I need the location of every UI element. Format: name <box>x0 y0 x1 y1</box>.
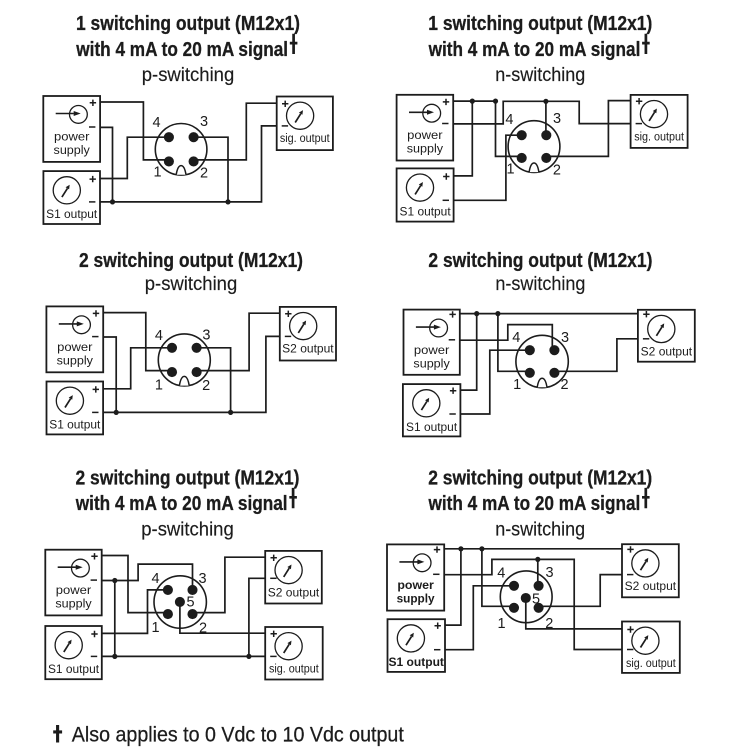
svg-text:3: 3 <box>545 565 553 581</box>
svg-text:3: 3 <box>553 111 561 127</box>
svg-text:4: 4 <box>512 330 520 346</box>
svg-text:supply: supply <box>413 357 450 371</box>
svg-text:S2 output: S2 output <box>625 579 677 593</box>
svg-text:5: 5 <box>532 591 540 607</box>
svg-text:n-switching: n-switching <box>495 518 585 540</box>
svg-text:4: 4 <box>151 571 159 587</box>
svg-text:4: 4 <box>152 115 160 131</box>
svg-text:p-switching: p-switching <box>142 64 235 86</box>
svg-text:3: 3 <box>198 571 206 587</box>
svg-text:supply: supply <box>397 591 435 605</box>
svg-text:power: power <box>56 583 91 597</box>
svg-text:power: power <box>414 343 449 357</box>
svg-text:sig. output: sig. output <box>280 131 330 145</box>
svg-text:1 switching output (M12x1): 1 switching output (M12x1) <box>76 13 300 35</box>
svg-text:4: 4 <box>155 328 163 344</box>
svg-text:power: power <box>57 340 92 354</box>
svg-text:2 switching output (M12x1): 2 switching output (M12x1) <box>79 250 303 272</box>
svg-text:with 4 mA to 20 mA signal: with 4 mA to 20 mA signal <box>428 493 641 515</box>
svg-text:2: 2 <box>553 163 561 179</box>
svg-text:2: 2 <box>545 616 553 632</box>
svg-text:supply: supply <box>55 597 92 611</box>
svg-text:S1 output: S1 output <box>406 420 458 434</box>
svg-text:S1 output: S1 output <box>388 655 444 669</box>
svg-text:3: 3 <box>561 330 569 346</box>
svg-text:n-switching: n-switching <box>495 64 585 86</box>
svg-text:1: 1 <box>151 620 159 636</box>
svg-text:sig. output: sig. output <box>269 662 319 676</box>
svg-text:2: 2 <box>200 165 208 181</box>
svg-text:with 4 mA to 20 mA signal: with 4 mA to 20 mA signal <box>75 39 288 61</box>
svg-text:1: 1 <box>513 377 521 393</box>
svg-text:with 4 mA to 20 mA signal: with 4 mA to 20 mA signal <box>75 493 288 515</box>
svg-text:2: 2 <box>202 378 210 394</box>
svg-text:power: power <box>407 128 442 142</box>
svg-text:Also applies to 0 Vdc to 10 Vd: Also applies to 0 Vdc to 10 Vdc output <box>72 723 404 746</box>
svg-text:S1 output: S1 output <box>48 662 100 676</box>
svg-text:p-switching: p-switching <box>145 273 238 295</box>
svg-text:2 switching output (M12x1): 2 switching output (M12x1) <box>428 250 652 272</box>
svg-text:power: power <box>397 578 434 592</box>
svg-text:2: 2 <box>560 377 568 393</box>
svg-text:3: 3 <box>202 328 210 344</box>
svg-text:n-switching: n-switching <box>495 273 585 295</box>
svg-text:sig. output: sig. output <box>626 656 676 670</box>
svg-text:4: 4 <box>497 566 505 582</box>
svg-text:S1 output: S1 output <box>46 207 98 221</box>
svg-text:S2 output: S2 output <box>268 586 320 600</box>
svg-text:1: 1 <box>154 165 162 181</box>
svg-text:5: 5 <box>187 595 195 611</box>
svg-text:1 switching output (M12x1): 1 switching output (M12x1) <box>428 13 652 35</box>
svg-text:p-switching: p-switching <box>141 518 234 540</box>
svg-text:supply: supply <box>54 143 91 157</box>
svg-text:1: 1 <box>155 378 163 394</box>
svg-text:1: 1 <box>498 616 506 632</box>
svg-text:supply: supply <box>407 142 444 156</box>
svg-text:2 switching output (M12x1): 2 switching output (M12x1) <box>76 468 300 490</box>
svg-text:S2 output: S2 output <box>641 344 693 358</box>
svg-text:2 switching output (M12x1): 2 switching output (M12x1) <box>428 468 652 490</box>
svg-text:power: power <box>54 129 89 143</box>
svg-text:with 4 mA to 20 mA signal: with 4 mA to 20 mA signal <box>428 39 641 61</box>
svg-text:2: 2 <box>199 620 207 636</box>
svg-text:supply: supply <box>57 353 94 367</box>
svg-text:S1 output: S1 output <box>400 204 452 218</box>
svg-text:S2 output: S2 output <box>282 342 334 356</box>
svg-text:1: 1 <box>506 162 514 178</box>
svg-text:sig. output: sig. output <box>634 130 684 144</box>
svg-text:4: 4 <box>505 112 513 128</box>
svg-text:3: 3 <box>200 114 208 130</box>
svg-text:S1 output: S1 output <box>49 417 101 431</box>
